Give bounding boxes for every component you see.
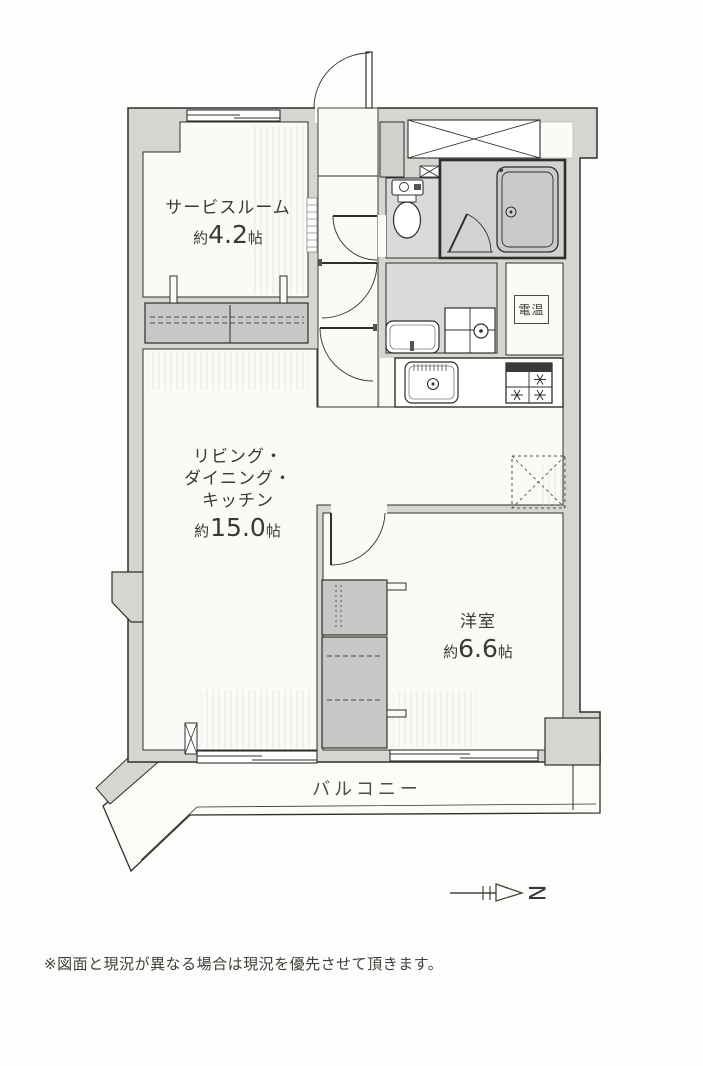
hallway-floor — [318, 108, 378, 407]
water-heater-box: 電温 — [514, 295, 549, 324]
toilet — [392, 180, 423, 238]
north-arrow: N — [450, 884, 548, 901]
toilet-door-opening — [378, 215, 386, 257]
ldk-window — [197, 751, 317, 763]
pipe-space-box — [420, 166, 439, 177]
closet-door-post — [280, 276, 287, 303]
service-room-label: サービスルーム 約4.2帖 — [165, 197, 291, 252]
floor-plan-page: N サービスルーム 約4.2帖 リビング・ ダイニング・ キッチン 約15.0帖… — [0, 0, 703, 1066]
western-room-name: 洋室 — [443, 611, 513, 633]
entrance-alcove-floor — [540, 122, 573, 158]
corner-pillar — [545, 718, 600, 765]
ldk-name-line2: ダイニング・ — [184, 468, 292, 490]
bathroom — [440, 160, 565, 258]
closet-door-post — [170, 276, 177, 303]
stove — [506, 363, 552, 403]
western-door-opening — [331, 504, 387, 514]
service-room-name: サービスルーム — [165, 197, 291, 219]
closet-handle — [387, 710, 406, 717]
closet-handle — [387, 583, 406, 590]
western-room-label: 洋室 約6.6帖 — [443, 611, 513, 666]
service-room-window — [187, 110, 280, 121]
shoe-cabinet — [380, 122, 404, 177]
ldk-size: 約15.0帖 — [184, 512, 292, 545]
service-room-size: 約4.2帖 — [165, 219, 291, 252]
washer-pan — [445, 308, 495, 353]
disclaimer-footnote: ※図面と現況が異なる場合は現況を優先させて頂きます。 — [44, 953, 443, 974]
ldk-label: リビング・ ダイニング・ キッチン 約15.0帖 — [184, 446, 292, 545]
western-room-window — [390, 750, 538, 761]
kitchen-counter — [395, 358, 563, 407]
ldk-name-line1: リビング・ — [184, 446, 292, 468]
floor-plan-canvas: N — [0, 0, 703, 1066]
porch-void-box — [408, 120, 540, 158]
vanity-sink — [386, 321, 439, 353]
entrance-door-leaf — [366, 52, 372, 108]
balcony-label: バルコニー — [312, 778, 422, 801]
water-heater-label: 電温 — [518, 301, 544, 318]
entrance-door-swing — [314, 53, 369, 108]
wall-post-box — [185, 723, 197, 754]
shower-fixture — [499, 168, 503, 172]
tank-faucet — [400, 183, 409, 192]
ldk-name-line3: キッチン — [184, 490, 292, 512]
north-letter: N — [523, 885, 548, 901]
wall-vent — [307, 198, 317, 252]
balcony-slab — [103, 756, 600, 871]
western-room-size: 約6.6帖 — [443, 633, 513, 666]
toilet-bowl — [394, 202, 421, 238]
